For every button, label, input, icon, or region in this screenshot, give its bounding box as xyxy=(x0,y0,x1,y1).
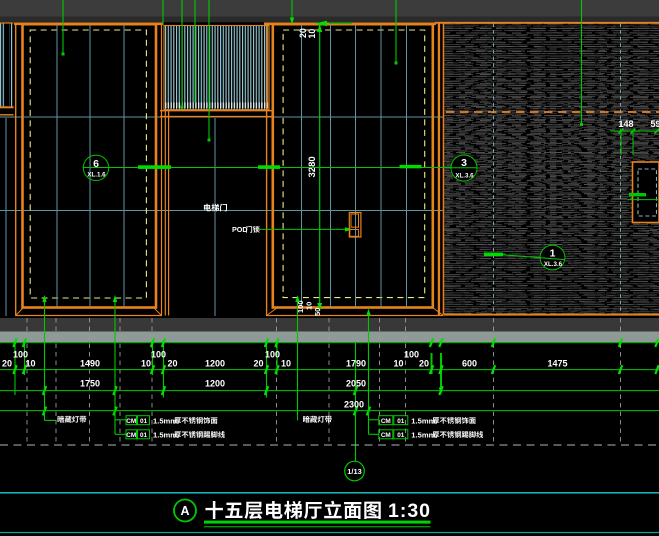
svg-text:CM: CM xyxy=(126,418,136,425)
svg-text:1200: 1200 xyxy=(205,359,225,369)
svg-text:CM: CM xyxy=(381,418,391,425)
svg-text:1790: 1790 xyxy=(346,359,366,369)
svg-text:100: 100 xyxy=(151,349,166,359)
svg-text:20: 20 xyxy=(2,359,12,369)
svg-text:1.5mm: 1.5mm xyxy=(153,416,177,425)
svg-text:1750: 1750 xyxy=(80,378,100,388)
svg-text:A: A xyxy=(180,504,189,518)
svg-text:1.5mm: 1.5mm xyxy=(153,430,177,439)
svg-text:XL.3.6: XL.3.6 xyxy=(455,173,474,180)
svg-text:01: 01 xyxy=(397,432,405,439)
svg-text:01: 01 xyxy=(397,418,405,425)
svg-text:POD: POD xyxy=(232,225,248,234)
svg-text:59: 59 xyxy=(650,119,659,129)
svg-text:XL.1.6: XL.1.6 xyxy=(87,172,106,179)
svg-text:50: 50 xyxy=(313,308,322,316)
svg-text:CM: CM xyxy=(126,432,136,439)
svg-text:CM: CM xyxy=(381,432,391,439)
svg-text:1490: 1490 xyxy=(80,359,100,369)
svg-text:01: 01 xyxy=(140,418,148,425)
svg-text:1.5mm: 1.5mm xyxy=(411,416,435,425)
svg-text:10: 10 xyxy=(281,359,291,369)
svg-text:1: 1 xyxy=(550,247,556,259)
svg-text:600: 600 xyxy=(462,359,477,369)
svg-text:1475: 1475 xyxy=(547,359,567,369)
svg-text:1200: 1200 xyxy=(205,378,225,388)
svg-text:3280: 3280 xyxy=(307,156,318,177)
svg-text:10: 10 xyxy=(393,359,403,369)
svg-text:XL.3.6: XL.3.6 xyxy=(544,261,563,268)
svg-text:3: 3 xyxy=(461,157,467,169)
svg-text:20: 20 xyxy=(419,359,429,369)
svg-text:100: 100 xyxy=(265,349,280,359)
svg-text:100: 100 xyxy=(404,349,419,359)
svg-text:1.5mm: 1.5mm xyxy=(411,430,435,439)
svg-text:20: 20 xyxy=(253,359,263,369)
svg-text:148: 148 xyxy=(618,119,633,129)
svg-text:20: 20 xyxy=(167,359,177,369)
svg-text:2300: 2300 xyxy=(344,400,364,410)
svg-text:10: 10 xyxy=(141,359,151,369)
svg-text:01: 01 xyxy=(140,432,148,439)
svg-text:10: 10 xyxy=(25,359,35,369)
svg-text:1/13: 1/13 xyxy=(347,467,361,476)
svg-text:10: 10 xyxy=(307,29,317,39)
svg-text:1:30: 1:30 xyxy=(388,500,431,522)
svg-text:2050: 2050 xyxy=(346,378,366,388)
svg-text:6: 6 xyxy=(93,158,99,170)
